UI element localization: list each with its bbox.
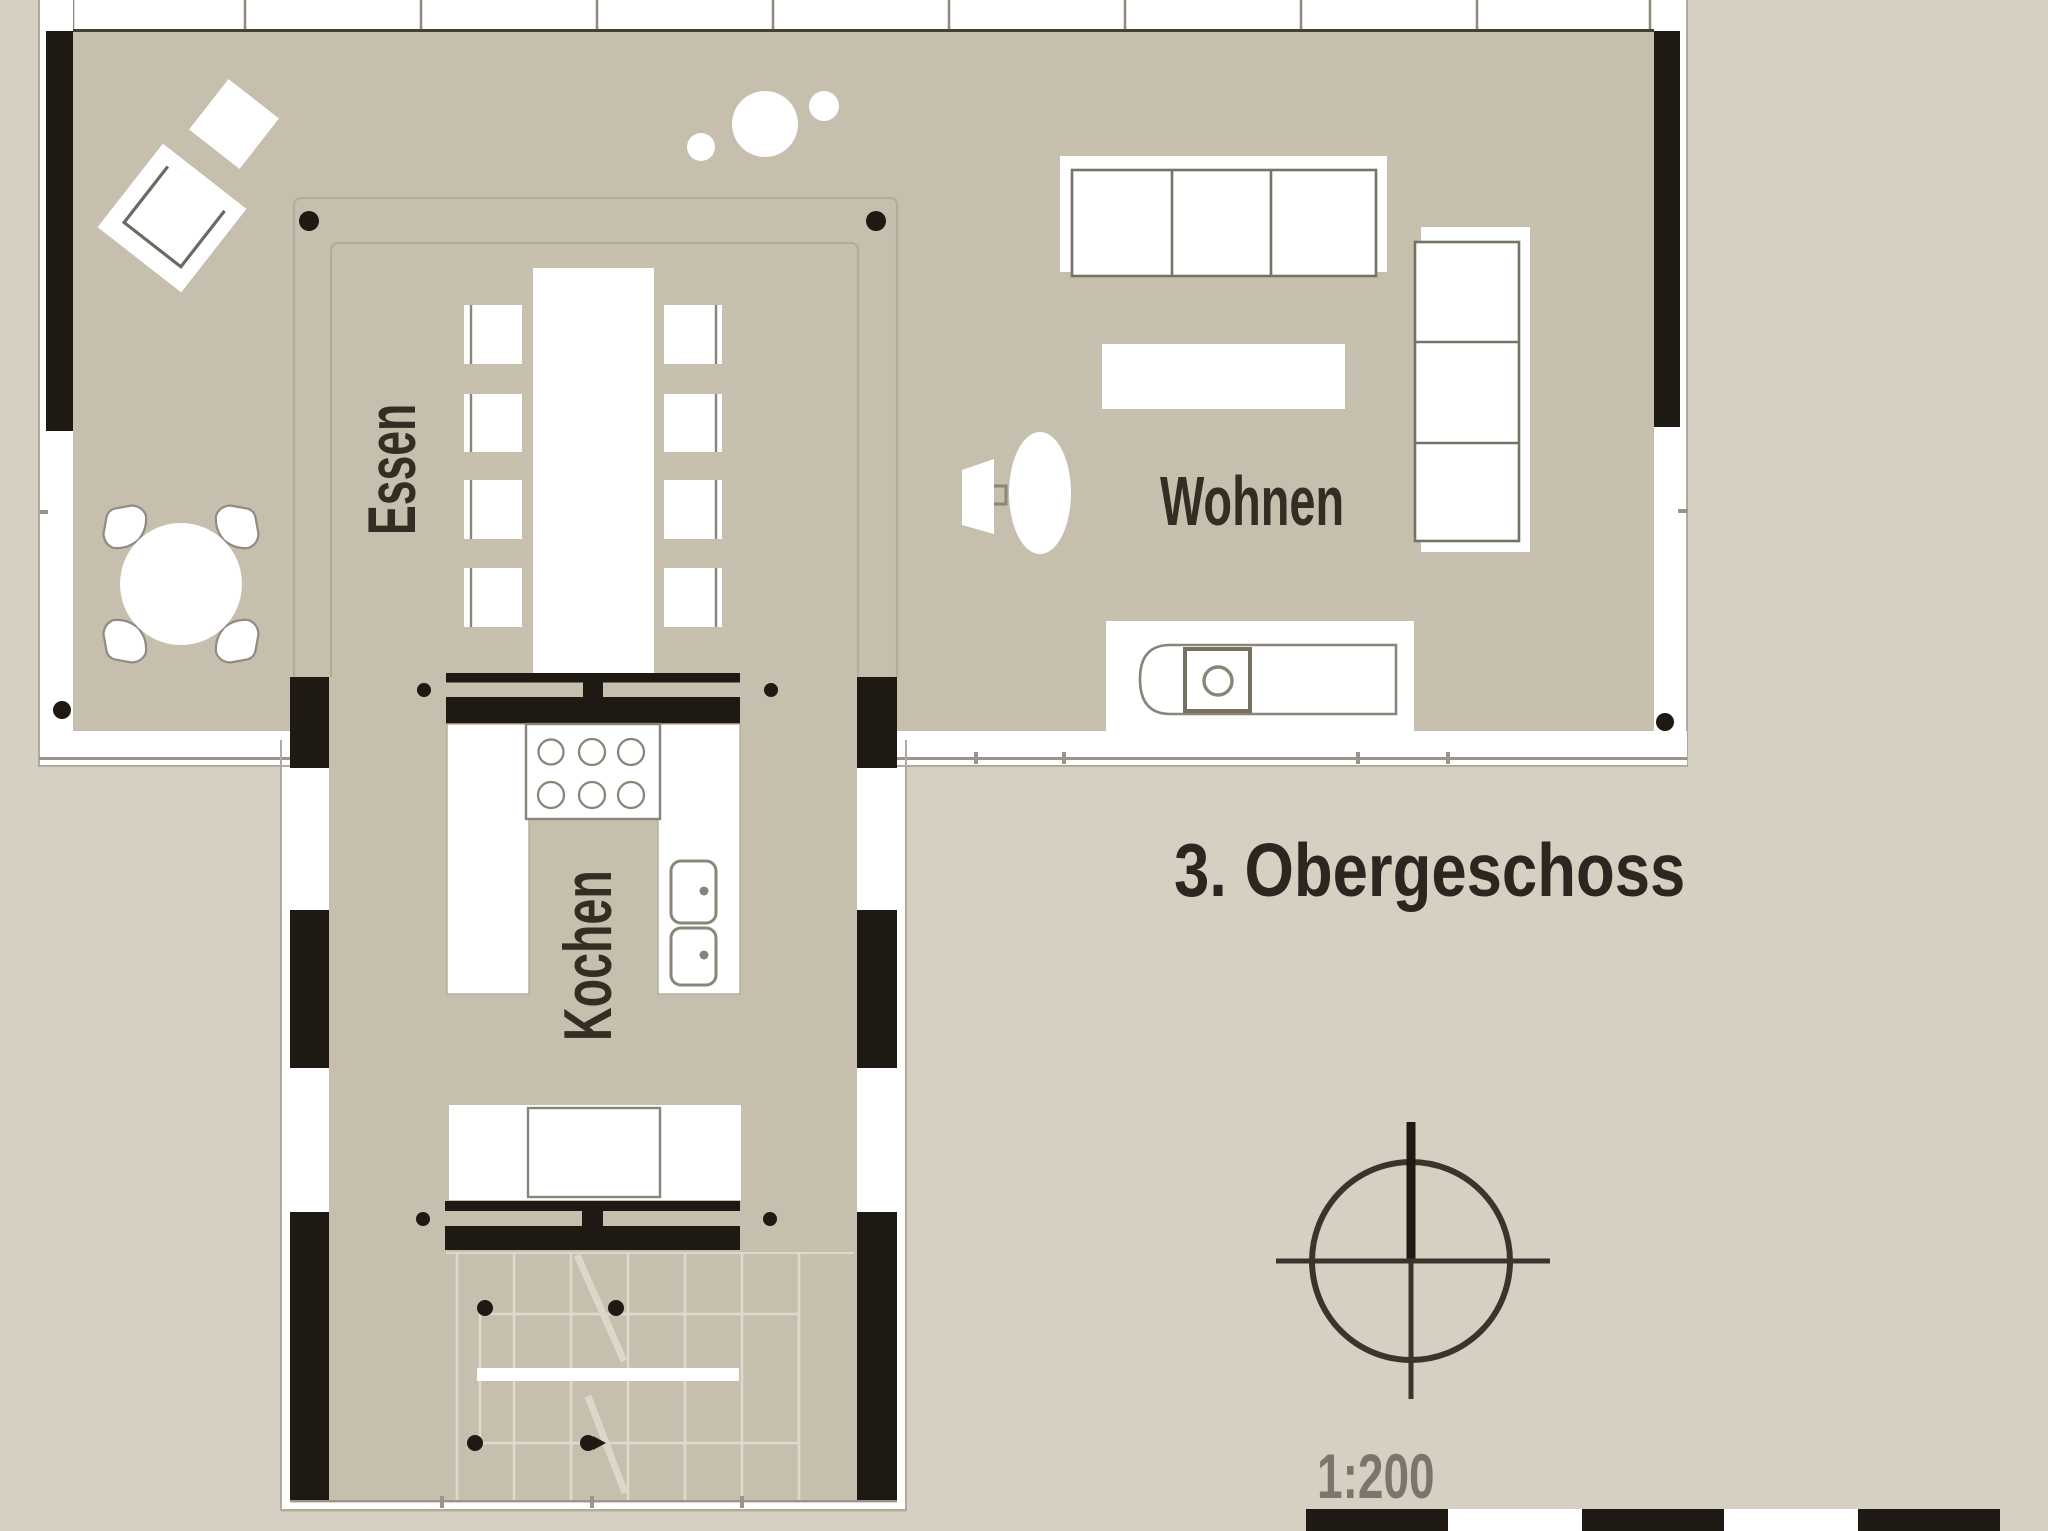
svg-text:Essen: Essen	[355, 404, 431, 535]
svg-text:1:200: 1:200	[1317, 1441, 1435, 1512]
svg-text:Kochen: Kochen	[550, 870, 626, 1041]
svg-text:3. Obergeschoss: 3. Obergeschoss	[1174, 828, 1685, 912]
svg-text:Wohnen: Wohnen	[1160, 462, 1344, 541]
